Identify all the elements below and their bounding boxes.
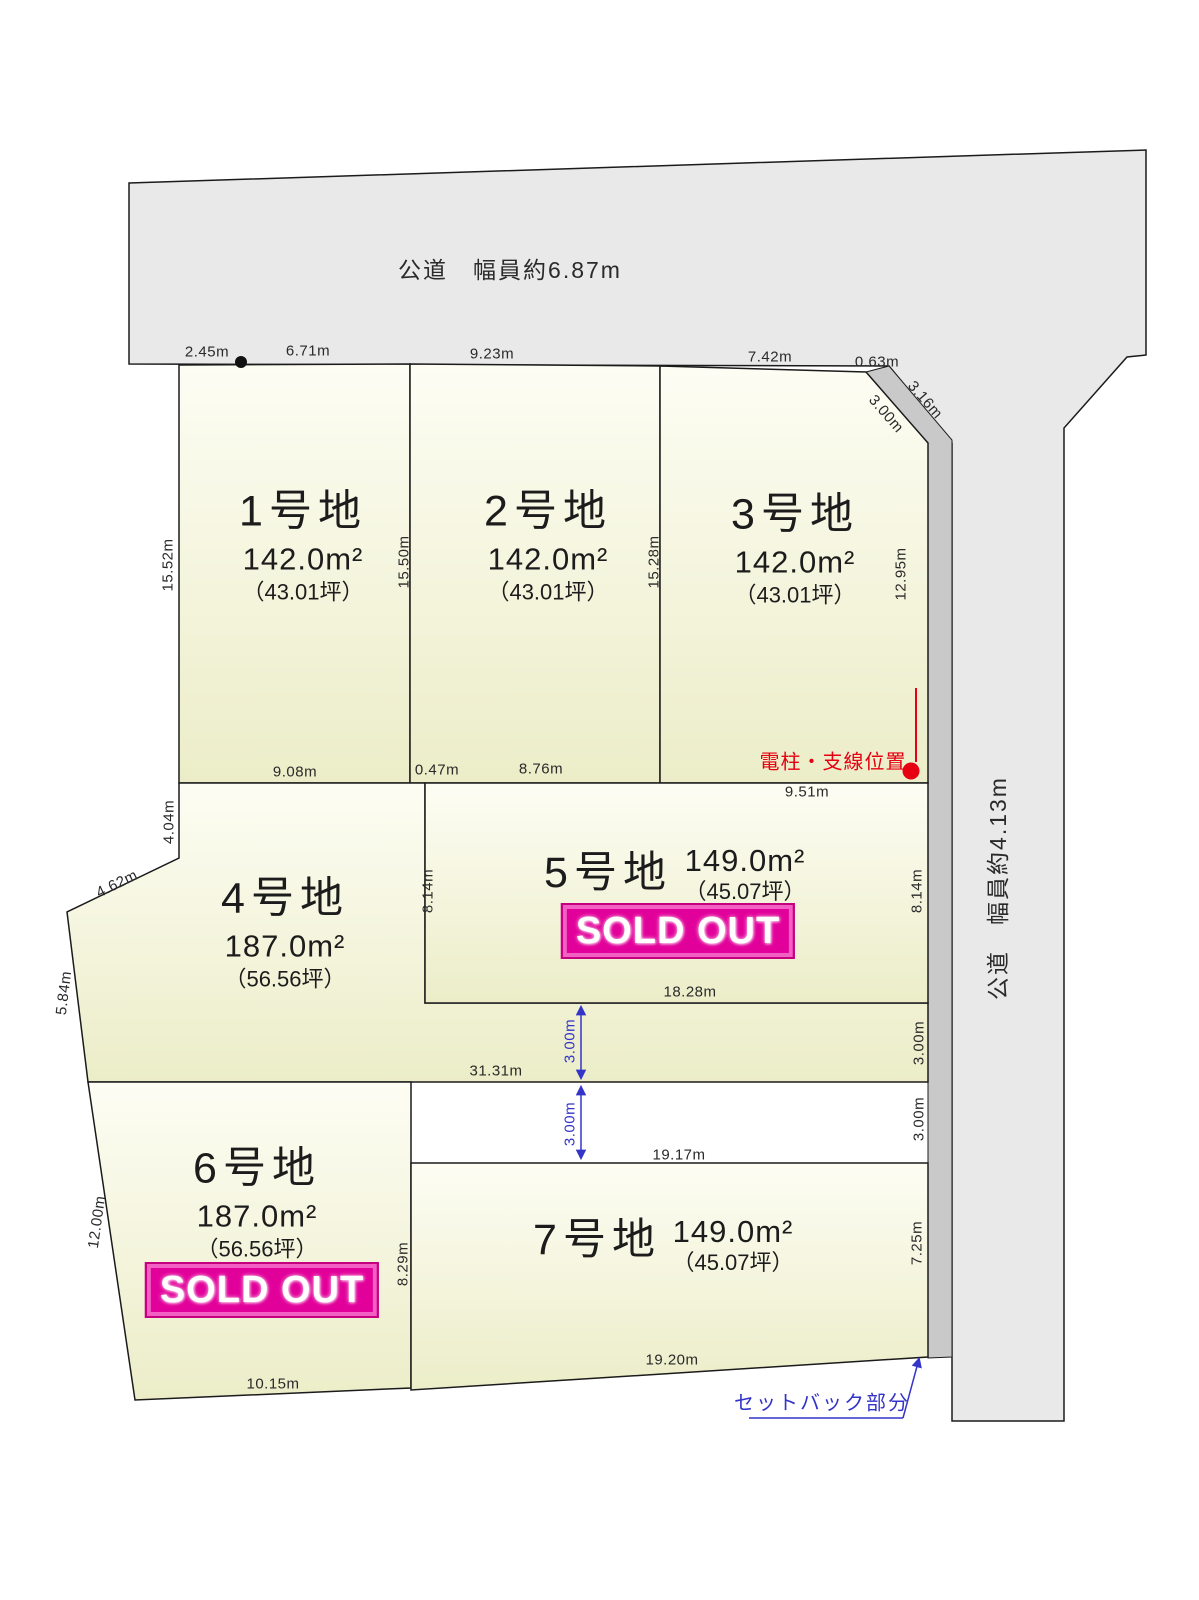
dim-lot2-east: 15.28m xyxy=(646,535,663,588)
dim-lot5-west: 8.14m xyxy=(420,869,437,913)
lot-1-area: 142.0m² xyxy=(239,544,367,575)
lot-7-name: 7号地 xyxy=(533,1205,661,1267)
lot-4-label: 4号地 187.0m² （56.56坪） xyxy=(221,878,349,991)
lot-layout-diagram: 公道 幅員約6.87m 公道 幅員約4.13m 1号地 142.0m² （43.… xyxy=(0,0,1199,1600)
dim-lot5-south: 18.28m xyxy=(663,984,716,1001)
lot-7-area: 149.0m² xyxy=(672,1216,793,1247)
dim-lot6-south: 10.15m xyxy=(246,1376,299,1393)
lot-1-label: 1号地 142.0m² （43.01坪） xyxy=(239,491,367,604)
lot-3-label: 3号地 142.0m² （43.01坪） xyxy=(731,494,859,607)
dim-access-north: 3.00m xyxy=(562,1019,579,1063)
lot-3-name: 3号地 xyxy=(731,494,859,537)
dim-lot2-south: 8.76m xyxy=(519,761,563,778)
dim-road-top-seg1: 2.45m xyxy=(185,344,229,361)
dim-access-south: 3.00m xyxy=(562,1102,579,1146)
lot-2-area: 142.0m² xyxy=(484,544,612,575)
dim-road-top-seg3: 9.23m xyxy=(470,346,514,363)
dim-lot1-east: 15.50m xyxy=(396,535,413,588)
lot-6-area: 187.0m² xyxy=(193,1201,321,1232)
lot-7-area-group: 149.0m² （45.07坪） xyxy=(672,1216,793,1274)
lot-6-tsubo: （56.56坪） xyxy=(193,1239,321,1261)
lot-5-area: 149.0m² xyxy=(684,845,805,876)
dim-lot7-west: 8.29m xyxy=(395,1242,412,1286)
dim-road-top-seg2: 6.71m xyxy=(286,343,330,360)
dim-lot5-east: 8.14m xyxy=(909,869,926,913)
road-top-label: 公道 幅員約6.87m xyxy=(398,251,622,285)
dim-road-top-seg4: 7.42m xyxy=(748,349,792,366)
lot-7-tsubo: （45.07坪） xyxy=(672,1252,793,1274)
lot-5-area-group: 149.0m² （45.07坪） xyxy=(684,845,805,903)
parcel-map-canvas xyxy=(0,0,1199,1600)
dim-lot7-north: 19.17m xyxy=(652,1147,705,1164)
lot-1-tsubo: （43.01坪） xyxy=(239,582,367,604)
lot-2-tsubo: （43.01坪） xyxy=(484,582,612,604)
lot-5-polygon xyxy=(425,783,928,1003)
lot-5-name: 5号地 xyxy=(544,838,672,900)
dim-road-top-seg5: 0.63m xyxy=(855,354,899,371)
lot-4-area: 187.0m² xyxy=(221,931,349,962)
boundary-point-dot xyxy=(235,356,247,368)
lot-5-sold-out-banner: SOLD OUT xyxy=(561,903,795,959)
dim-lot4-south: 31.31m xyxy=(469,1063,522,1080)
lot-3-area: 142.0m² xyxy=(731,547,859,578)
dim-jog: 0.47m xyxy=(415,762,459,779)
dim-lot4-north-west: 4.04m xyxy=(161,800,178,844)
lot-4-tsubo: （56.56坪） xyxy=(221,969,349,991)
lot-6-sold-out-banner: SOLD OUT xyxy=(145,1262,379,1318)
utility-pole-label: 電柱・支線位置 xyxy=(760,746,907,775)
lot-1-name: 1号地 xyxy=(239,491,367,534)
lot-4-name: 4号地 xyxy=(221,878,349,921)
dim-lot3-south: 9.51m xyxy=(785,784,829,801)
lot-3-tsubo: （43.01坪） xyxy=(731,585,859,607)
dim-lot7-south: 19.20m xyxy=(645,1352,698,1369)
lot-6-name: 6号地 xyxy=(193,1148,321,1191)
lot-5-tsubo: （45.07坪） xyxy=(684,881,805,903)
dim-access-north-east: 3.00m xyxy=(911,1021,928,1065)
dim-access-south-east: 3.00m xyxy=(911,1097,928,1141)
lot-6-label: 6号地 187.0m² （56.56坪） xyxy=(193,1148,321,1261)
dim-lot3-east: 12.95m xyxy=(893,547,910,600)
lot-2-name: 2号地 xyxy=(484,491,612,534)
dim-lot1-west: 15.52m xyxy=(160,538,177,591)
setback-label: セットバック部分 xyxy=(734,1387,910,1416)
dim-lot1-south: 9.08m xyxy=(273,764,317,781)
lot-2-label: 2号地 142.0m² （43.01坪） xyxy=(484,491,612,604)
dim-lot7-east: 7.25m xyxy=(909,1221,926,1265)
road-right-label: 公道 幅員約4.13m xyxy=(979,776,1013,1000)
